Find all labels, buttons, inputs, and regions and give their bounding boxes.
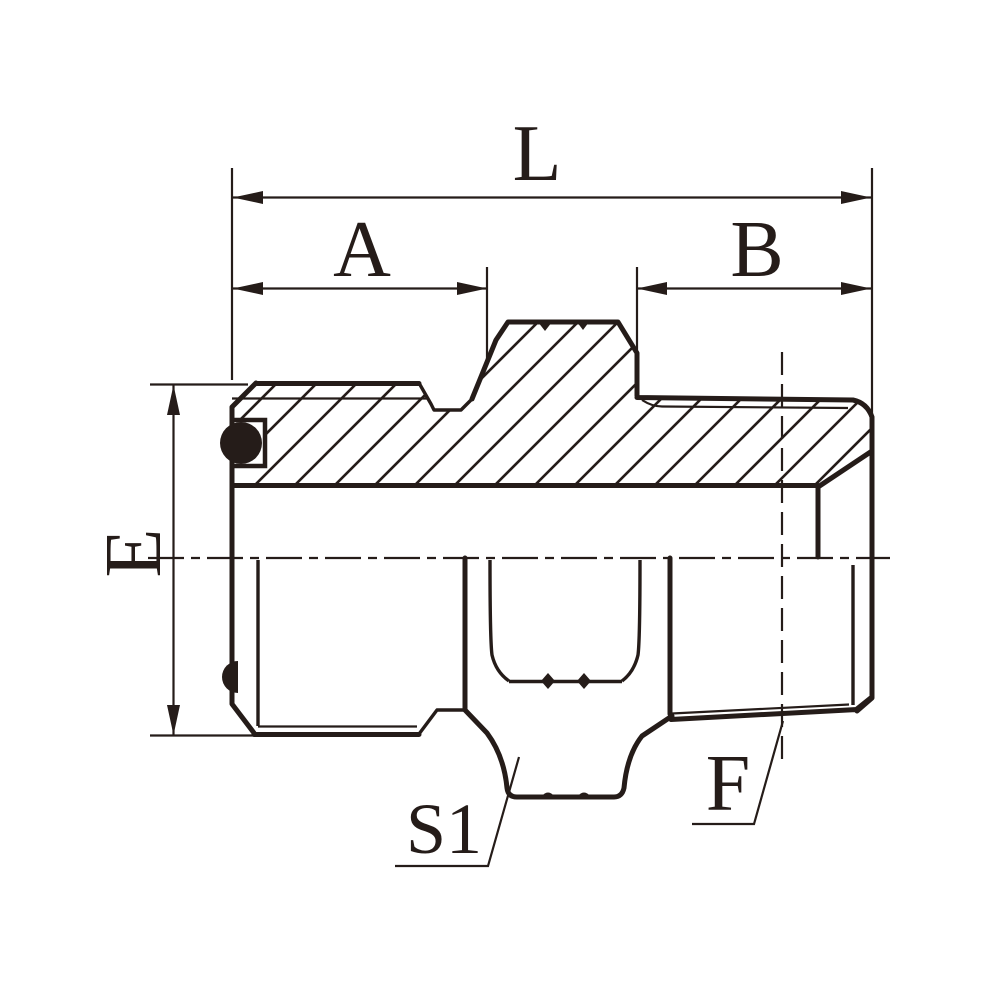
- oring-section-circle: [220, 422, 262, 464]
- part-outline: [232, 322, 872, 797]
- dim-label-right-thread-size: F: [706, 740, 751, 828]
- oring-side-bulge: [222, 661, 238, 693]
- section-hatch-lines: [0, 280, 1000, 540]
- dim-label-left-thread-length: A: [333, 206, 391, 294]
- dim-label-hex-size: S1: [406, 789, 482, 869]
- dim-label-thread-diameter: E: [90, 529, 178, 578]
- dim-label-right-thread-length: B: [730, 206, 783, 294]
- drawing-canvas: L A B E S1 F: [0, 0, 1000, 1000]
- dim-label-overall-length: L: [513, 110, 562, 198]
- technical-drawing: L A B E S1 F: [0, 0, 1000, 1000]
- dimension-labels: L A B E S1 F: [90, 110, 784, 869]
